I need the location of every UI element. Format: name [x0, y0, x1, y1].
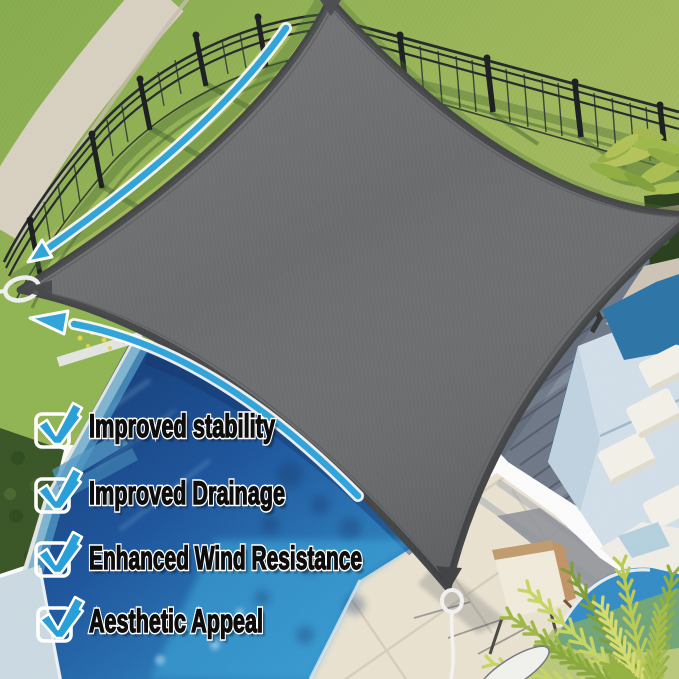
svg-text:Aesthetic Appeal: Aesthetic Appeal [89, 603, 263, 639]
svg-text:Improved Drainage: Improved Drainage [89, 475, 285, 511]
svg-text:Enhanced Wind Resistance: Enhanced Wind Resistance [89, 540, 362, 576]
svg-text:Improved stability: Improved stability [89, 408, 275, 444]
